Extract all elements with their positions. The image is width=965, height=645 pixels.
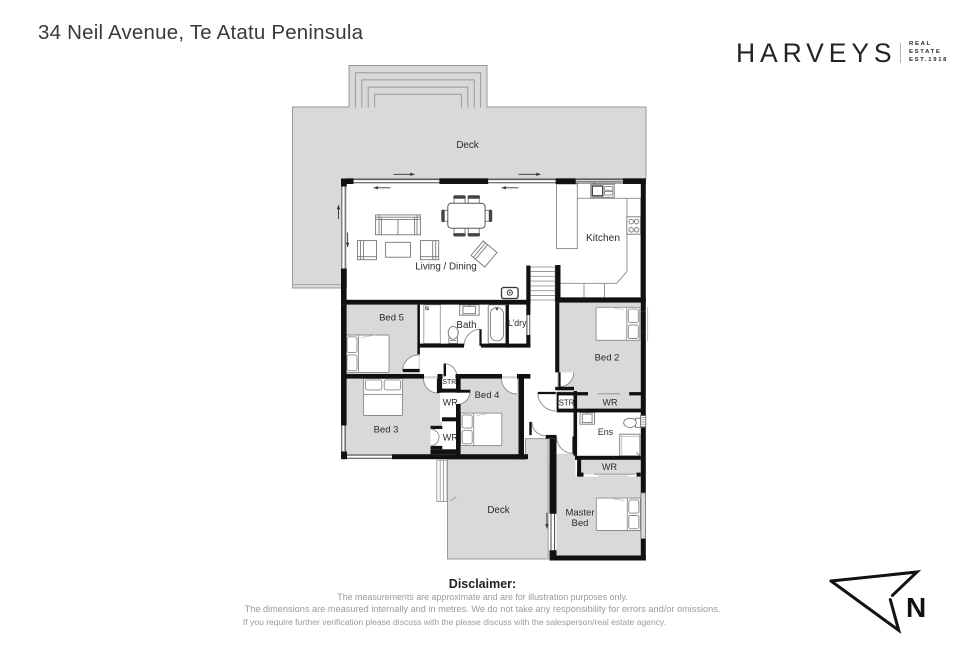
svg-text:Deck: Deck <box>487 505 509 516</box>
svg-text:Bed 4: Bed 4 <box>475 390 500 401</box>
svg-text:Deck: Deck <box>456 140 478 151</box>
svg-text:Bed: Bed <box>572 518 589 529</box>
svg-text:WR: WR <box>603 397 618 407</box>
svg-text:Ens: Ens <box>598 427 614 437</box>
svg-text:WR: WR <box>443 397 458 407</box>
svg-text:STR: STR <box>442 379 456 386</box>
svg-text:Kitchen: Kitchen <box>586 233 620 244</box>
svg-text:WR: WR <box>602 462 617 472</box>
svg-text:Master: Master <box>565 508 594 519</box>
svg-text:Bed 3: Bed 3 <box>374 425 399 436</box>
svg-text:Bed 2: Bed 2 <box>595 353 620 364</box>
svg-text:L’dry: L’dry <box>508 318 527 328</box>
svg-text:Living / Dining: Living / Dining <box>415 262 477 273</box>
svg-text:Bed 5: Bed 5 <box>379 312 404 323</box>
svg-text:STR: STR <box>559 398 575 407</box>
svg-text:Bath: Bath <box>456 320 476 331</box>
svg-text:WR: WR <box>443 433 458 443</box>
